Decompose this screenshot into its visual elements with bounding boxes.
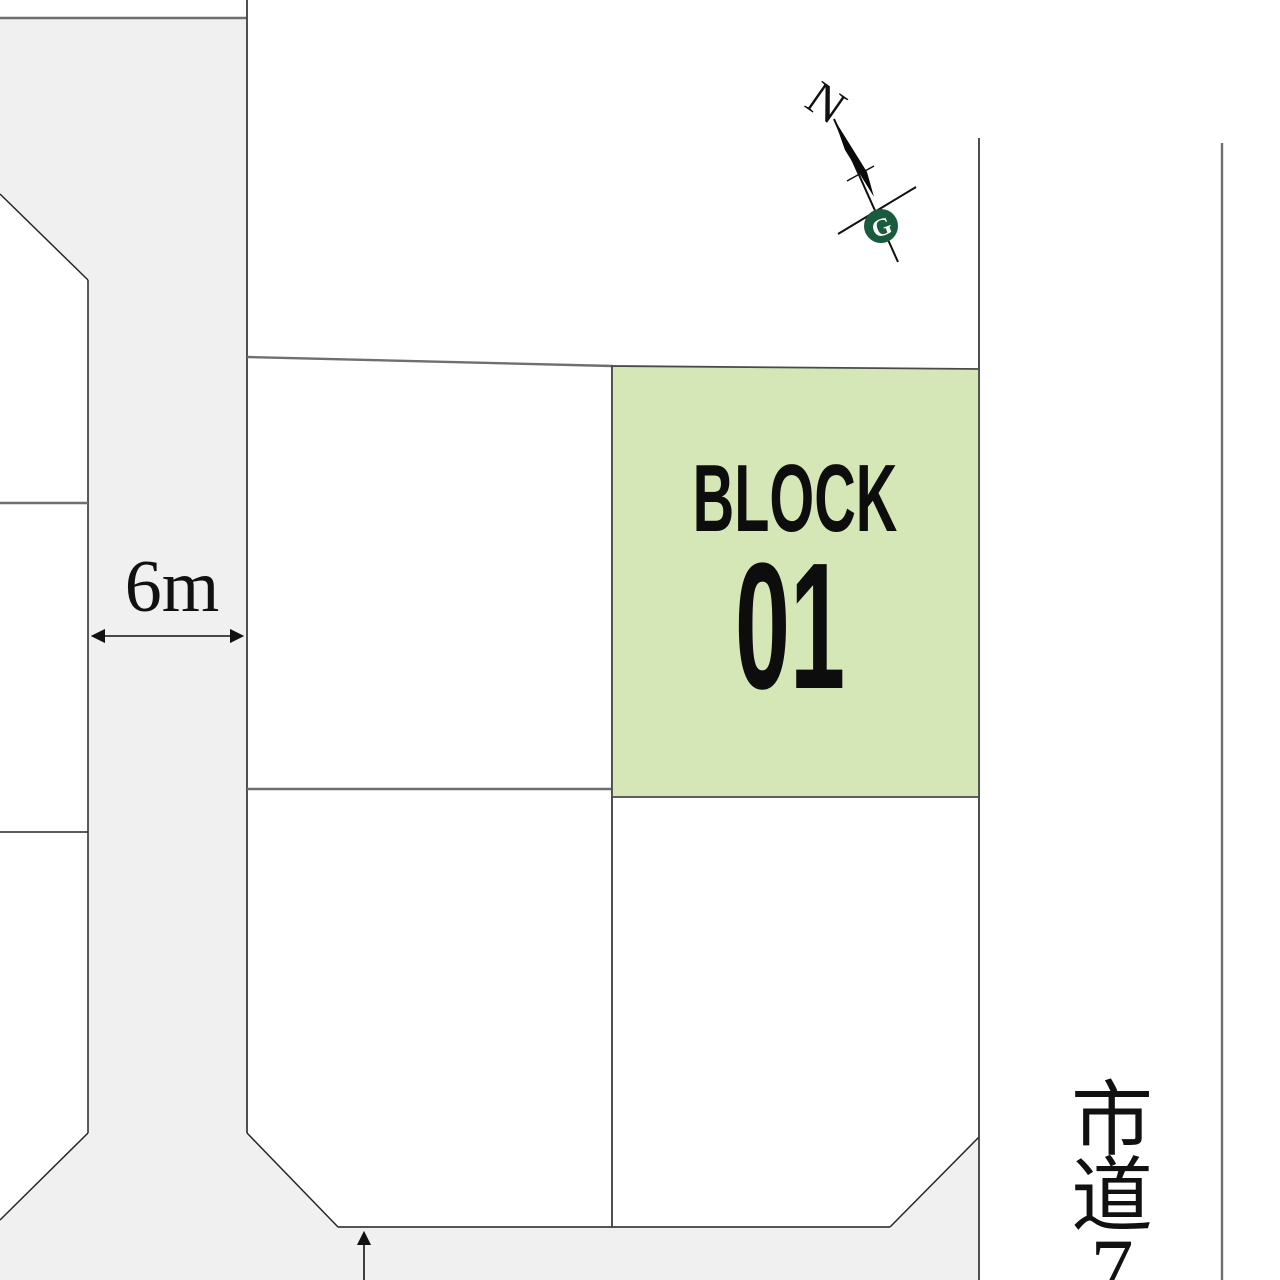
site-plan-canvas: BLOCK 01 6m 市 道 7 G N	[0, 0, 1280, 1280]
road-width-label: 6m	[125, 546, 220, 628]
road-name-char-3: 7	[1091, 1221, 1134, 1280]
site-plan: BLOCK 01 6m 市 道 7 G N	[0, 0, 1280, 1280]
block-number: 01	[735, 524, 845, 726]
